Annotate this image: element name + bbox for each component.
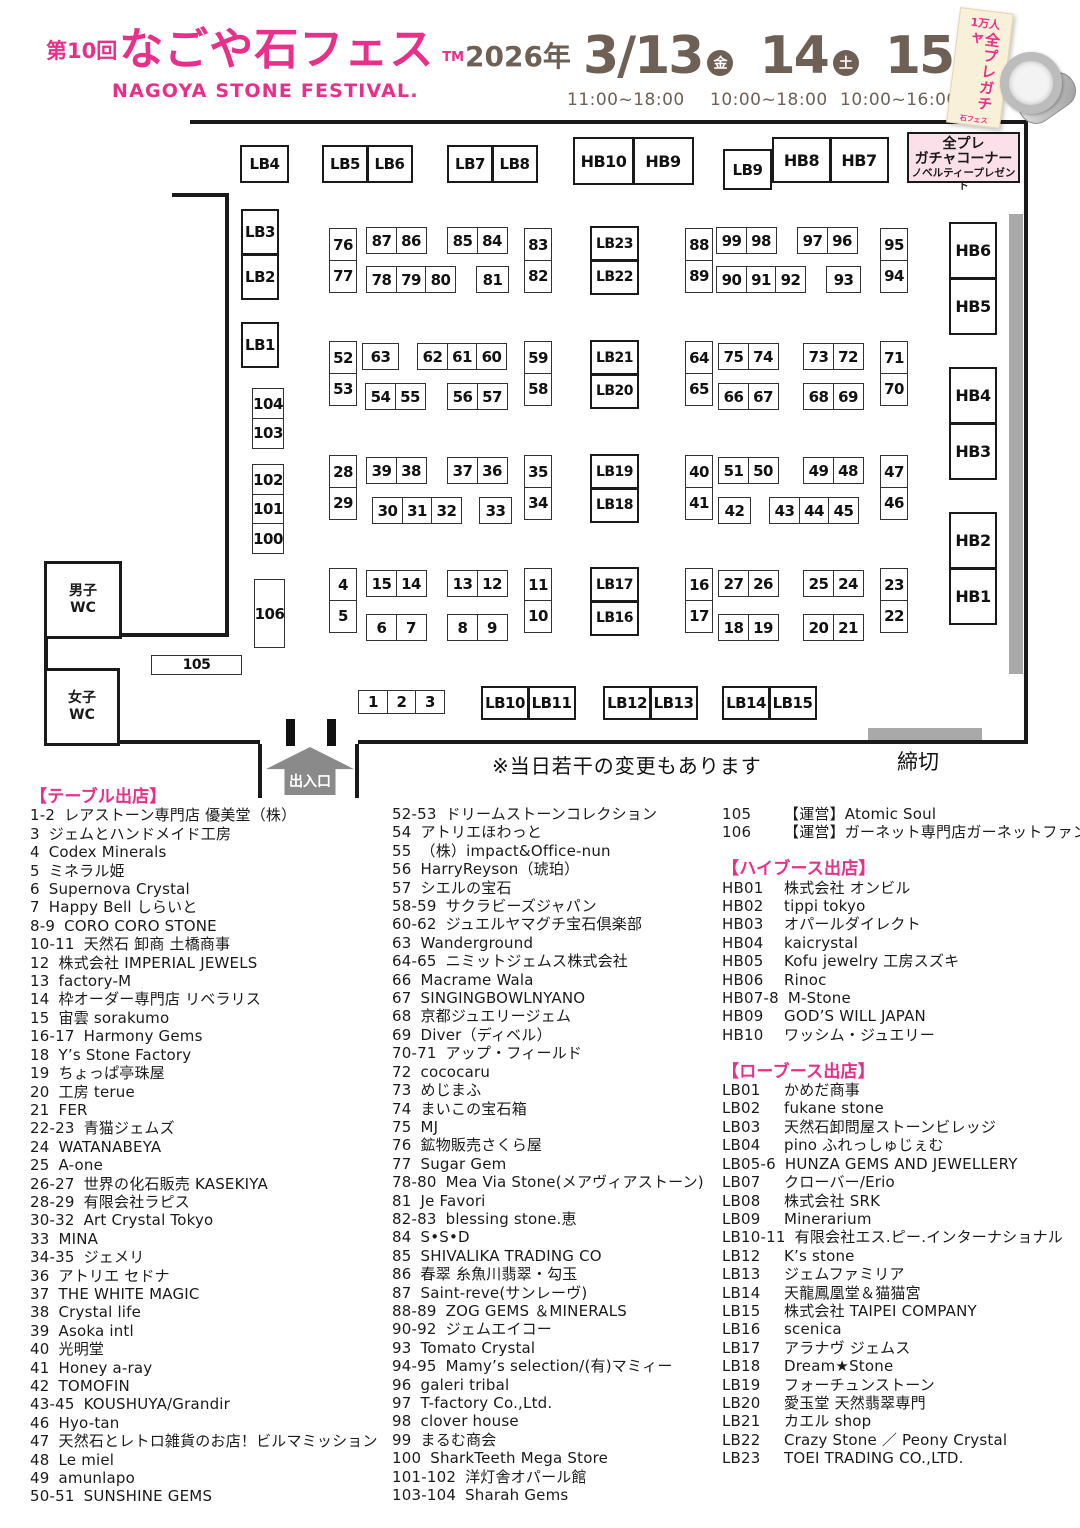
event-subtitle: NAGOYA STONE FESTIVAL. xyxy=(112,80,419,102)
legend-item-number: 56 xyxy=(392,860,412,878)
legend-item-name: Asoka intl xyxy=(59,1322,134,1340)
legend-item-number: 87 xyxy=(392,1284,412,1302)
legend-item-number: 90-92 xyxy=(392,1320,437,1338)
legend-item-name: 天然石卸問屋ストーンビレッジ xyxy=(784,1118,996,1136)
booth-HB3: HB3 xyxy=(949,423,997,480)
legend-item: 72cococaru xyxy=(392,1063,704,1081)
booth-group: 102101100 xyxy=(252,464,284,554)
booth-group: 123 xyxy=(358,690,445,714)
legend-item: 66Macrame Wala xyxy=(392,971,704,989)
booth-87: 87 xyxy=(366,227,397,254)
booth-12: 12 xyxy=(477,570,508,597)
legend-item-number: 88-89 xyxy=(392,1302,437,1320)
legend-item-name: ジェムエイコー xyxy=(446,1320,552,1338)
legend-item-number: LB23 xyxy=(722,1449,775,1467)
legend-item-number: HB01 xyxy=(722,879,775,897)
booth-group: 33 xyxy=(479,497,512,524)
legend-item: 96galeri tribal xyxy=(392,1376,704,1394)
legend-item-name: Sugar Gem xyxy=(421,1155,507,1173)
legend-item-name: 洋灯舎オパール館 xyxy=(465,1468,587,1486)
legend-item: 13factory-M xyxy=(30,972,378,990)
legend-item-number: 28-29 xyxy=(30,1193,75,1211)
legend-item-name: HarryReyson（琥珀） xyxy=(421,860,580,878)
legend-item: LB08株式会社 SRK xyxy=(722,1192,1080,1210)
legend-item: HB04kaicrystal xyxy=(722,934,1080,952)
legend-item-name: factory-M xyxy=(59,972,132,990)
booth-30: 30 xyxy=(372,497,403,524)
booth-98: 98 xyxy=(746,227,777,254)
booth-35: 35 xyxy=(524,455,552,488)
legend-item-name: ニミットジェムス株式会社 xyxy=(446,952,628,970)
legend-item: 88-89ZOG GEMS ＆MINERALS xyxy=(392,1302,704,1320)
legend-item-number: 20 xyxy=(30,1083,50,1101)
legend-item-name: M-Stone xyxy=(788,989,851,1007)
legend-item: LB23TOEI TRADING CO.,LTD. xyxy=(722,1449,1080,1467)
booth-90: 90 xyxy=(716,266,747,293)
booth-92: 92 xyxy=(775,266,806,293)
legend-item-name: 宙雲 sorakumo xyxy=(59,1009,170,1027)
legend-item-name: クローバー/Erio xyxy=(784,1173,895,1191)
legend-item: LB19フォーチュンストーン xyxy=(722,1376,1080,1394)
wall-step xyxy=(172,193,229,197)
legend-item-name: scenica xyxy=(784,1320,842,1338)
booth-14: 14 xyxy=(396,570,427,597)
legend-item-name: TOMOFIN xyxy=(59,1377,130,1395)
booth-40: 40 xyxy=(685,455,713,488)
wall-bottom-right xyxy=(358,740,1028,744)
legend-item-number: 69 xyxy=(392,1026,412,1044)
legend-item-number: 58-59 xyxy=(392,897,437,915)
booth-HB10: HB10 xyxy=(573,137,634,185)
booth-group: 2524 xyxy=(803,570,864,597)
booth-70: 70 xyxy=(880,373,908,406)
legend-item-name: Honey a-ray xyxy=(59,1359,153,1377)
legend-item-name: まいこの宝石箱 xyxy=(421,1100,527,1118)
legend-item-number: LB16 xyxy=(722,1320,775,1338)
legend-item: 43-45KOUSHUYA/Grandir xyxy=(30,1395,378,1413)
legend-item-name: ジェメリ xyxy=(84,1248,145,1266)
legend-item: 10-11天然石 卸商 土橋商事 xyxy=(30,935,378,953)
booth-6: 6 xyxy=(366,614,397,641)
legend-item-number: 30-32 xyxy=(30,1211,75,1229)
booth-34: 34 xyxy=(524,487,552,520)
booth-85: 85 xyxy=(447,227,478,254)
legend-item: 47天然石とレトロ雑貨のお店！ビルマミッション xyxy=(30,1432,378,1450)
legend-item-number: 13 xyxy=(30,972,50,990)
booth-group: LB10LB11 xyxy=(481,686,576,720)
legend-item: LB20愛玉堂 天然翡翠専門 xyxy=(722,1394,1080,1412)
booth-77: 77 xyxy=(329,260,357,293)
booth-group: 8889 xyxy=(685,228,713,293)
legend-item: 58-59サクラビーズジャパン xyxy=(392,897,704,915)
legend-item-name: アラナヴ ジェムス xyxy=(784,1339,911,1357)
legend-item: 81Je Favori xyxy=(392,1192,704,1210)
booth-73: 73 xyxy=(803,343,834,370)
booth-group: 7677 xyxy=(329,228,357,293)
booth-LB12: LB12 xyxy=(603,686,651,720)
legend-item-number: 72 xyxy=(392,1063,412,1081)
legend-item: HB06Rinoc xyxy=(722,971,1080,989)
booth-group: 8382 xyxy=(524,228,552,293)
legend-item-number: 41 xyxy=(30,1359,50,1377)
legend-item-name: HUNZA GEMS AND JEWELLERY xyxy=(785,1155,1018,1173)
legend-item: HB01株式会社 オンビル xyxy=(722,879,1080,897)
legend-item: 50-51SUNSHINE GEMS xyxy=(30,1487,378,1505)
legend-item-number: 34-35 xyxy=(30,1248,75,1266)
wc-women-box: 女子 WC xyxy=(44,668,120,746)
dow-badge-sat: 土 xyxy=(833,50,859,76)
booth-group: 303132 xyxy=(372,497,462,524)
legend-item-number: 37 xyxy=(30,1285,50,1303)
legend-item-number: 24 xyxy=(30,1138,50,1156)
legend-item: 55（株）impact&Office-nun xyxy=(392,842,704,860)
booth-group: 5958 xyxy=(524,341,552,406)
legend-item: LB12K’s stone xyxy=(722,1247,1080,1265)
legend-item: 82-83blessing stone.恵 xyxy=(392,1210,704,1228)
legend-item-name: 光明堂 xyxy=(59,1340,105,1358)
legend-item-name: 春翠 糸魚川翡翠・勾玉 xyxy=(421,1265,578,1283)
legend-item: 3ジェムとハンドメイド工房 xyxy=(30,825,378,843)
booth-49: 49 xyxy=(803,457,834,484)
booth-LB1: LB1 xyxy=(241,322,279,368)
booth-group: 93 xyxy=(826,266,861,293)
legend-item-number: 1-2 xyxy=(30,806,55,824)
booth-74: 74 xyxy=(748,343,779,370)
legend-item-number: 100 xyxy=(392,1449,421,1467)
legend-item: LB10-11有限会社エス.ピー.インターナショナル xyxy=(722,1228,1080,1246)
booth-60: 60 xyxy=(476,343,507,370)
legend-item-name: fukane stone xyxy=(784,1099,884,1117)
booth-23: 23 xyxy=(880,568,908,601)
legend-item: 99まるむ商会 xyxy=(392,1431,704,1449)
legend-item: LB01かめだ商事 xyxy=(722,1081,1080,1099)
legend-item-name: Mamy’s selection/(有)マミィー xyxy=(446,1357,673,1375)
legend-item: 30-32Art Crystal Tokyo xyxy=(30,1211,378,1229)
booth-46: 46 xyxy=(880,487,908,520)
booth-HB4: HB4 xyxy=(949,367,997,424)
booth-group: 7372 xyxy=(803,343,864,370)
legend-item-name: GOD’S WILL JAPAN xyxy=(784,1007,926,1025)
booth-group: 909192 xyxy=(716,266,806,293)
booth-LB16: LB16 xyxy=(590,601,639,636)
legend-item: LB18Dream★Stone xyxy=(722,1357,1080,1375)
booth-37: 37 xyxy=(447,457,478,484)
legend-item-name: 鉱物販売さくら屋 xyxy=(421,1136,543,1154)
booth-LB14: LB14 xyxy=(722,686,770,720)
legend-item-number: 22-23 xyxy=(30,1119,75,1137)
legend-item: 18Y’s Stone Factory xyxy=(30,1046,378,1064)
booth-17: 17 xyxy=(685,600,713,633)
legend-item-name: フォーチュンストーン xyxy=(784,1376,935,1394)
legend-item-number: LB02 xyxy=(722,1099,775,1117)
booth-group: 6869 xyxy=(803,383,864,410)
booth-group: 4041 xyxy=(685,455,713,520)
legend-item-number: LB21 xyxy=(722,1412,775,1430)
legend-item: 73めじまふ xyxy=(392,1081,704,1099)
booth-HB1: HB1 xyxy=(949,568,997,625)
legend-item-name: 愛玉堂 天然翡翠専門 xyxy=(784,1394,926,1412)
gacha-line2: ガチャコーナー xyxy=(909,152,1018,167)
booth-2: 2 xyxy=(387,690,417,714)
legend-item-name: ミネラル姫 xyxy=(49,862,125,880)
legend-item: 103-104Sharah Gems xyxy=(392,1486,704,1504)
booth-group: 5657 xyxy=(447,383,508,410)
legend-item-number: 4 xyxy=(30,843,40,861)
legend-item-number: LB01 xyxy=(722,1081,775,1099)
legend-item-number: 50-51 xyxy=(30,1487,75,1505)
legend-item: 34-35ジェメリ xyxy=(30,1248,378,1266)
legend-item: 56HarryReyson（琥珀） xyxy=(392,860,704,878)
booth-LB10: LB10 xyxy=(481,686,529,720)
legend-item: 22-23青猫ジェムズ xyxy=(30,1119,378,1137)
legend-item-number: HB07-8 xyxy=(722,989,779,1007)
legend-item: 36アトリエ セドナ xyxy=(30,1267,378,1285)
booth-LB21: LB21 xyxy=(590,340,639,375)
booth-39: 39 xyxy=(366,457,397,484)
booth-group: LB23LB22 xyxy=(590,226,639,295)
legend-item-number: 48 xyxy=(30,1451,50,1469)
booth-25: 25 xyxy=(803,570,834,597)
booth-group: 2726 xyxy=(718,570,779,597)
booth-group: 89 xyxy=(447,614,508,641)
legend-item: 84S•S•D xyxy=(392,1228,704,1246)
booth-106: 106 xyxy=(254,579,285,648)
gacha-line3: ノベルティープレゼント xyxy=(909,167,1018,193)
legend-item-name: Supernova Crystal xyxy=(49,880,190,898)
closed-area-bar-right xyxy=(1009,214,1023,674)
legend-item: 48Le miel xyxy=(30,1451,378,1469)
legend-item-number: LB07 xyxy=(722,1173,775,1191)
legend-item-number: 8-9 xyxy=(30,917,55,935)
booth-10: 10 xyxy=(524,600,552,633)
legend-item-name: Harmony Gems xyxy=(84,1027,203,1045)
legend-item: 74まいこの宝石箱 xyxy=(392,1100,704,1118)
booth-94: 94 xyxy=(880,260,908,293)
legend-item: HB02tippi tokyo xyxy=(722,897,1080,915)
legend-item-name: SharkTeeth Mega Store xyxy=(430,1449,608,1467)
legend-item: 38Crystal life xyxy=(30,1303,378,1321)
booth-group: 626160 xyxy=(417,343,507,370)
legend-item-number: 25 xyxy=(30,1156,50,1174)
booth-63: 63 xyxy=(362,343,399,370)
booth-LB18: LB18 xyxy=(590,488,639,523)
legend-item-number: 52-53 xyxy=(392,805,437,823)
booth-LB6: LB6 xyxy=(367,145,413,183)
booth-105: 105 xyxy=(151,655,242,675)
booth-group: HB6HB5 xyxy=(949,222,997,335)
legend-item-number: 103-104 xyxy=(392,1486,456,1504)
legend-item-number: LB08 xyxy=(722,1192,775,1210)
booth-group: 104103 xyxy=(252,388,284,449)
booth-99: 99 xyxy=(716,227,747,254)
legend-item-number: 7 xyxy=(30,898,40,916)
legend-item: 94-95Mamy’s selection/(有)マミィー xyxy=(392,1357,704,1375)
booth-group: 7170 xyxy=(880,341,908,406)
wall-left-upper xyxy=(225,193,229,637)
legend-item-number: 33 xyxy=(30,1230,50,1248)
legend-item-name: Rinoc xyxy=(784,971,827,989)
booth-91: 91 xyxy=(746,266,777,293)
booth-61: 61 xyxy=(447,343,478,370)
booth-group: 105 xyxy=(151,655,242,675)
booth-group: 8786 xyxy=(366,227,427,254)
legend-item-number: LB19 xyxy=(722,1376,775,1394)
legend-item-number: 10-11 xyxy=(30,935,75,953)
booth-group: 67 xyxy=(366,614,427,641)
legend-item-name: アップ・フィールド xyxy=(446,1044,583,1062)
booth-LB4: LB4 xyxy=(240,145,289,183)
booth-65: 65 xyxy=(685,373,713,406)
legend-item-number: 57 xyxy=(392,879,412,897)
legend-item: 15宙雲 sorakumo xyxy=(30,1009,378,1027)
booth-group: 9796 xyxy=(797,227,858,254)
legend-item-number: 82-83 xyxy=(392,1210,437,1228)
booth-71: 71 xyxy=(880,341,908,374)
booth-33: 33 xyxy=(479,497,512,524)
legend-item-name: K’s stone xyxy=(784,1247,855,1265)
legend-item: LB02fukane stone xyxy=(722,1099,1080,1117)
legend-item-number: 39 xyxy=(30,1322,50,1340)
legend-item-name: Wanderground xyxy=(421,934,534,952)
legend-item: 101-102洋灯舎オパール館 xyxy=(392,1468,704,1486)
legend-item: 26-27世界の化石販売 KASEKIYA xyxy=(30,1175,378,1193)
booth-4: 4 xyxy=(329,568,357,601)
legend-item-name: 株式会社 TAIPEI COMPANY xyxy=(784,1302,977,1320)
legend-item-name: （株）impact&Office-nun xyxy=(421,842,611,860)
booth-LB11: LB11 xyxy=(528,686,576,720)
booth-64: 64 xyxy=(685,341,713,374)
legend-item: 20工房 terue xyxy=(30,1083,378,1101)
legend-item-name: Kofu jewelry 工房スズキ xyxy=(784,952,959,970)
legend-item: 57シエルの宝石 xyxy=(392,879,704,897)
booth-LB8: LB8 xyxy=(492,145,538,183)
legend-item-name: Crazy Stone ／ Peony Crystal xyxy=(784,1431,1007,1449)
booth-group: LB9 xyxy=(723,149,772,190)
booth-group: 2322 xyxy=(880,568,908,633)
booth-group: 787980 xyxy=(366,266,456,293)
legend-item-name: WATANABEYA xyxy=(59,1138,162,1156)
legend-item-name: Le miel xyxy=(59,1451,115,1469)
booth-80: 80 xyxy=(425,266,456,293)
legend-item-number: 78-80 xyxy=(392,1173,437,1191)
legend-item: LB04pino ふれっしゅじぇむ xyxy=(722,1136,1080,1154)
legend-item: 97T-factory Co.,Ltd. xyxy=(392,1394,704,1412)
entrance-post xyxy=(327,719,336,746)
legend-item: HB03オパールダイレクト xyxy=(722,915,1080,933)
legend-item: HB09GOD’S WILL JAPAN xyxy=(722,1007,1080,1025)
legend-item-number: 21 xyxy=(30,1101,50,1119)
booth-72: 72 xyxy=(833,343,864,370)
booth-group: HB2HB1 xyxy=(949,512,997,625)
legend-item-number: 14 xyxy=(30,990,50,1008)
booth-95: 95 xyxy=(880,228,908,261)
booth-LB15: LB15 xyxy=(769,686,817,720)
legend-item-number: LB03 xyxy=(722,1118,775,1136)
legend-item-number: 46 xyxy=(30,1414,50,1432)
booth-group: 81 xyxy=(476,266,509,293)
legend-col3: 105【運営】Atomic Soul106【運営】ガーネット専門店ガーネットファ… xyxy=(722,788,1080,1468)
legend-item-name: kaicrystal xyxy=(784,934,858,952)
booth-group: LB3LB2 xyxy=(241,209,279,300)
legend-item-name: アトリエ セドナ xyxy=(59,1267,170,1285)
legend-item-name: Y’s Stone Factory xyxy=(59,1046,192,1064)
booth-13: 13 xyxy=(447,570,478,597)
legend-item: 67SINGINGBOWLNYANO xyxy=(392,989,704,1007)
legend-item-number: 97 xyxy=(392,1394,412,1412)
booth-52: 52 xyxy=(329,341,357,374)
booth-group: LB7LB8 xyxy=(447,145,538,183)
legend-item-name: Diver（ディベル） xyxy=(421,1026,552,1044)
legend-item: 24WATANABEYA xyxy=(30,1138,378,1156)
booth-group: LB4 xyxy=(240,145,289,183)
booth-54: 54 xyxy=(365,383,396,410)
legend-item-name: サクラビーズジャパン xyxy=(446,897,597,915)
legend-item-number: 47 xyxy=(30,1432,50,1450)
edition-label: 第10回 xyxy=(46,35,117,65)
legend-item-number: 73 xyxy=(392,1081,412,1099)
booth-104: 104 xyxy=(252,388,284,419)
booth-26: 26 xyxy=(748,570,779,597)
legend-item-name: Sharah Gems xyxy=(465,1486,568,1504)
legend-item-number: 16-17 xyxy=(30,1027,75,1045)
legend-item: 39Asoka intl xyxy=(30,1322,378,1340)
booth-31: 31 xyxy=(402,497,433,524)
legend-item-name: 【運営】ガーネット専門店ガーネットファンズ xyxy=(784,823,1080,841)
booth-86: 86 xyxy=(396,227,427,254)
legend-item-number: 43-45 xyxy=(30,1395,75,1413)
legend-col2: 52-53ドリームストーンコレクション54アトリエほわっと55（株）impact… xyxy=(392,788,704,1504)
legend-item-name: Dream★Stone xyxy=(784,1357,893,1375)
wc-women-line2: WC xyxy=(69,707,95,725)
dow-badge-fri: 金 xyxy=(707,50,733,76)
booth-group: 8584 xyxy=(447,227,508,254)
legend-item: LB14天龍鳳凰堂＆猫猫宮 xyxy=(722,1284,1080,1302)
legend-item-number: 77 xyxy=(392,1155,412,1173)
booth-group: 4948 xyxy=(803,457,864,484)
legend-item-number: HB02 xyxy=(722,897,775,915)
legend-item-number: 67 xyxy=(392,989,412,1007)
legend-item-number: 55 xyxy=(392,842,412,860)
legend-item-number: 42 xyxy=(30,1377,50,1395)
legend-item-number: LB04 xyxy=(722,1136,775,1154)
legend-item: 21FER xyxy=(30,1101,378,1119)
booth-66: 66 xyxy=(718,383,749,410)
legend-item-name: THE WHITE MAGIC xyxy=(59,1285,200,1303)
legend-item-name: ドリームストーンコレクション xyxy=(446,805,658,823)
booth-44: 44 xyxy=(799,497,830,524)
legend-item: 19ちょっぱ亭珠屋 xyxy=(30,1064,378,1082)
legend-item-number: 101-102 xyxy=(392,1468,456,1486)
legend-item-number: 96 xyxy=(392,1376,412,1394)
legend-item-name: SINGINGBOWLNYANO xyxy=(421,989,586,1007)
booth-53: 53 xyxy=(329,373,357,406)
legend-item-name: 工房 terue xyxy=(59,1083,135,1101)
legend-item: 70-71アップ・フィールド xyxy=(392,1044,704,1062)
legend-item: 5ミネラル姫 xyxy=(30,862,378,880)
booth-75: 75 xyxy=(718,343,749,370)
legend-item-name: まるむ商会 xyxy=(421,1431,497,1449)
legend-item-number: 49 xyxy=(30,1469,50,1487)
booth-9: 9 xyxy=(477,614,508,641)
booth-LB19: LB19 xyxy=(590,454,639,489)
booth-group: 1110 xyxy=(524,568,552,633)
booth-56: 56 xyxy=(447,383,478,410)
legend-item: 63Wanderground xyxy=(392,934,704,952)
legend-item-number: 74 xyxy=(392,1100,412,1118)
booth-19: 19 xyxy=(748,614,779,641)
booth-48: 48 xyxy=(833,457,864,484)
event-title-text: なごや石フェス xyxy=(119,28,434,72)
